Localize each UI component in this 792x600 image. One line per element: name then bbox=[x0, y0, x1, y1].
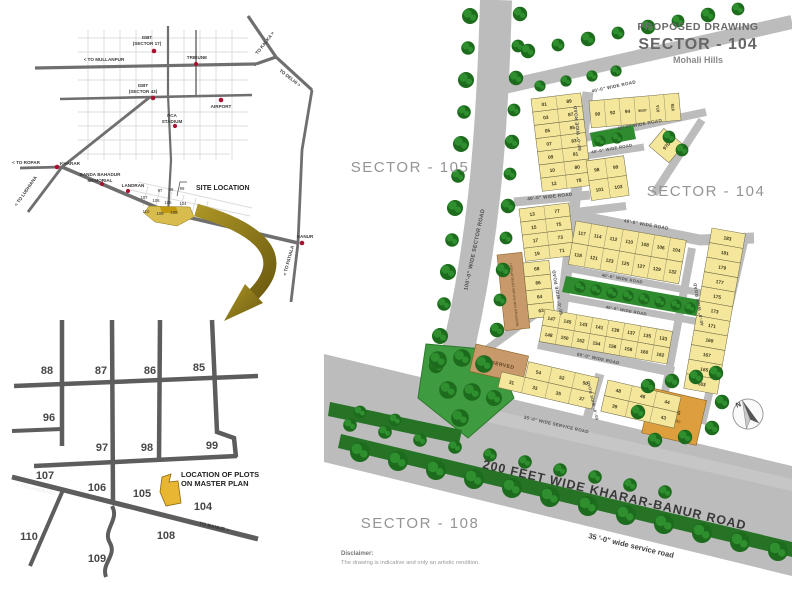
svg-text:85: 85 bbox=[193, 362, 205, 374]
svg-text:107: 107 bbox=[140, 195, 148, 200]
tree-icon bbox=[648, 433, 662, 447]
plot-number: 97B bbox=[670, 103, 676, 111]
sector-104-highlight: 104 bbox=[194, 501, 213, 513]
tree-icon bbox=[445, 233, 459, 247]
plot-number: 13 bbox=[529, 211, 535, 218]
svg-text:40'-0" WIDE ROAD: 40'-0" WIDE ROAD bbox=[591, 79, 637, 93]
plot-number: 63 bbox=[538, 308, 544, 315]
tree-icon bbox=[440, 264, 456, 280]
svg-text:109: 109 bbox=[88, 553, 106, 565]
title-proposed-drawing: PROPOSED DRAWING bbox=[637, 21, 758, 33]
plot-number: 71 bbox=[559, 248, 565, 255]
marker-banur bbox=[300, 241, 305, 246]
tree-icon bbox=[676, 144, 689, 157]
plot-number: 15 bbox=[531, 225, 537, 232]
label-site-location: SITE LOCATION bbox=[196, 185, 250, 192]
plot-number: 78 bbox=[576, 178, 582, 185]
label-landran: LANDRAN bbox=[122, 183, 145, 188]
plot-number: 77 bbox=[554, 208, 560, 215]
tree-icon bbox=[586, 70, 597, 81]
tree-icon bbox=[574, 281, 585, 292]
svg-text:110: 110 bbox=[143, 209, 150, 214]
location-note: LOCATION OF PLOTS bbox=[181, 470, 259, 479]
plot-number: 01 bbox=[541, 102, 547, 109]
label-to-patiala: < TO PATIALA bbox=[282, 244, 295, 276]
tree-icon bbox=[768, 541, 788, 561]
marker-landran bbox=[126, 189, 130, 193]
marker-isbt17 bbox=[152, 49, 157, 54]
title-sector: SECTOR - 104 bbox=[638, 36, 757, 53]
plot-number: 03 bbox=[543, 115, 549, 122]
label-tribune: TRIBUNE bbox=[187, 55, 207, 60]
tree-icon bbox=[413, 433, 427, 447]
tree-icon bbox=[611, 132, 622, 143]
plot-number: 66 bbox=[535, 280, 541, 287]
plot-number: 97A bbox=[655, 105, 661, 113]
tree-icon bbox=[508, 104, 521, 117]
plot-number: 89 bbox=[566, 98, 572, 105]
svg-text:104: 104 bbox=[179, 201, 187, 206]
svg-text:98: 98 bbox=[141, 442, 153, 454]
plot-block: 9899101103 bbox=[586, 156, 629, 201]
svg-text:86: 86 bbox=[144, 365, 156, 377]
tree-icon bbox=[638, 293, 649, 304]
tree-icon bbox=[594, 135, 605, 146]
disclaimer-label: Disclaimer: bbox=[341, 551, 373, 557]
plot-number: 90 bbox=[595, 111, 601, 117]
tree-icon bbox=[612, 27, 625, 40]
tree-icon bbox=[453, 349, 471, 367]
tree-icon bbox=[665, 374, 679, 388]
tree-icon bbox=[678, 430, 692, 444]
tree-icon bbox=[354, 406, 367, 419]
plot-number: 05 bbox=[545, 128, 551, 135]
plot-number: 75 bbox=[556, 222, 562, 229]
tree-icon bbox=[458, 72, 474, 88]
svg-text:105: 105 bbox=[133, 488, 151, 500]
tree-icon bbox=[560, 75, 571, 86]
tree-icon bbox=[590, 284, 601, 295]
tree-icon bbox=[464, 469, 484, 489]
svg-text:97: 97 bbox=[96, 442, 108, 454]
svg-text:97: 97 bbox=[158, 188, 163, 193]
tree-icon bbox=[453, 136, 469, 152]
tree-icon bbox=[616, 505, 636, 525]
tree-icon bbox=[521, 44, 535, 58]
svg-text:106: 106 bbox=[88, 482, 106, 494]
bottom-master-plan-map: 88 87 86 85 96 97 98 99 107 106 105 110 … bbox=[12, 320, 259, 577]
tree-icon bbox=[730, 532, 750, 552]
plot-highlight bbox=[160, 474, 181, 506]
svg-text:98: 98 bbox=[169, 187, 174, 192]
svg-text:107: 107 bbox=[36, 470, 54, 482]
tree-icon bbox=[715, 395, 729, 409]
tree-icon bbox=[709, 366, 723, 380]
tree-icon bbox=[610, 65, 621, 76]
tree-icon bbox=[343, 418, 357, 432]
label-to-ropar: < TO ROPAR bbox=[12, 160, 40, 165]
tree-icon bbox=[684, 302, 695, 313]
label-banur: BANUR bbox=[297, 234, 314, 239]
tree-icon bbox=[439, 381, 457, 399]
svg-text:STADIUM: STADIUM bbox=[162, 119, 183, 124]
tree-icon bbox=[654, 514, 674, 534]
label-isbt17: ISBT bbox=[142, 35, 153, 40]
tree-icon bbox=[432, 328, 448, 344]
tree-icon bbox=[705, 421, 719, 435]
label-pca: PCA bbox=[167, 113, 177, 118]
marker-isbt43 bbox=[151, 96, 156, 101]
plot-number: 92 bbox=[610, 110, 616, 116]
plot-number: 94 bbox=[625, 109, 631, 115]
disclaimer-text: The drawing is indicative and only an ar… bbox=[341, 560, 480, 566]
site-highlight bbox=[144, 206, 194, 226]
tree-icon bbox=[486, 390, 502, 406]
tree-icon bbox=[581, 32, 595, 46]
tree-icon bbox=[490, 323, 504, 337]
plot-number: 80 bbox=[574, 164, 580, 171]
label-isbt43: ISBT bbox=[138, 83, 149, 88]
tree-icon bbox=[378, 425, 392, 439]
marker-kharar bbox=[55, 165, 60, 170]
plot-number: 103 bbox=[614, 184, 623, 191]
plot-number: 10 bbox=[549, 168, 555, 175]
label-airport: AIRPORT bbox=[211, 104, 232, 109]
plot-number: 19 bbox=[534, 251, 540, 258]
svg-text:ON MASTER PLAN: ON MASTER PLAN bbox=[181, 479, 249, 488]
tree-icon bbox=[457, 105, 471, 119]
proposed-drawing-sheet: ISBT (SECTOR 17) < TO MULLANPUR TRIBUNE … bbox=[0, 0, 792, 600]
title-subtitle: Mohali Hills bbox=[673, 55, 723, 65]
tree-icon bbox=[654, 296, 665, 307]
tree-icon bbox=[689, 370, 703, 384]
svg-text:MEMORIAL: MEMORIAL bbox=[87, 178, 112, 183]
tree-icon bbox=[463, 383, 481, 401]
tree-icon bbox=[501, 199, 515, 213]
svg-text:99: 99 bbox=[206, 440, 218, 452]
svg-text:108: 108 bbox=[157, 530, 175, 542]
tree-icon bbox=[663, 131, 676, 144]
plot-number: 64 bbox=[537, 294, 543, 301]
plot-number: 81 bbox=[573, 151, 579, 158]
plot-number: 73 bbox=[557, 235, 563, 242]
svg-text:106: 106 bbox=[152, 198, 160, 203]
tree-icon bbox=[641, 379, 655, 393]
tree-icon bbox=[451, 409, 469, 427]
plot-number: 17 bbox=[533, 238, 539, 245]
master-plan-roads bbox=[12, 320, 258, 577]
tree-icon bbox=[504, 168, 517, 181]
plot-number: 96/97 bbox=[638, 108, 647, 113]
label-sector-108: SECTOR - 108 bbox=[361, 515, 480, 532]
tree-icon bbox=[437, 297, 451, 311]
tree-icon bbox=[475, 355, 493, 373]
site-plan: RESERVED FOR FUTURE DEVELOPMENT RESERVED… bbox=[324, 0, 792, 576]
label-kharar: KHARAR bbox=[60, 161, 81, 166]
tree-icon bbox=[513, 7, 527, 21]
disclaimer: Disclaimer: The drawing is indicative an… bbox=[341, 551, 480, 566]
tree-icon bbox=[578, 496, 598, 516]
tree-icon bbox=[494, 294, 507, 307]
tree-icon bbox=[658, 485, 672, 499]
svg-text:105: 105 bbox=[164, 200, 172, 205]
tree-icon bbox=[732, 3, 745, 16]
tree-icon bbox=[500, 232, 513, 245]
tree-icon bbox=[350, 442, 370, 462]
tree-icon bbox=[426, 460, 446, 480]
plot-number: 07 bbox=[546, 141, 552, 148]
svg-text:110: 110 bbox=[20, 531, 38, 543]
tree-icon bbox=[447, 200, 463, 216]
tree-icon bbox=[388, 451, 408, 471]
tree-icon bbox=[462, 8, 478, 24]
tree-icon bbox=[496, 263, 510, 277]
label-sector-104: SECTOR - 104 bbox=[647, 183, 766, 200]
tree-icon bbox=[540, 487, 560, 507]
svg-text:87: 87 bbox=[95, 365, 107, 377]
plot-blocks: 0189038705850783098110801278137715751773… bbox=[498, 93, 745, 428]
svg-text:96: 96 bbox=[43, 412, 55, 424]
tree-icon bbox=[505, 135, 519, 149]
tree-icon bbox=[389, 414, 402, 427]
svg-text:88: 88 bbox=[41, 365, 53, 377]
svg-text:108: 108 bbox=[170, 210, 178, 215]
label-to-mullanpur: < TO MULLANPUR bbox=[84, 57, 125, 62]
marker-airport bbox=[219, 98, 224, 103]
marker-tribune bbox=[194, 62, 198, 66]
north-compass-icon: N bbox=[728, 394, 767, 433]
svg-text:99: 99 bbox=[180, 186, 185, 191]
tree-icon bbox=[631, 405, 645, 419]
svg-text:(SECTOR 17): (SECTOR 17) bbox=[133, 41, 162, 46]
label-to-banur: TO BANUR > bbox=[199, 521, 230, 534]
tree-icon bbox=[670, 299, 681, 310]
plot-block: 1377157517731971 bbox=[519, 203, 575, 261]
svg-text:109: 109 bbox=[156, 211, 164, 216]
plot-number: 68 bbox=[534, 266, 540, 273]
tree-icon bbox=[552, 39, 565, 52]
label-memorial: BANDA BAHADUR bbox=[80, 172, 122, 177]
tree-icon bbox=[429, 351, 447, 369]
tree-icon bbox=[692, 523, 712, 543]
label-sector-105: SECTOR - 105 bbox=[351, 159, 470, 176]
tree-icon bbox=[448, 440, 462, 454]
svg-text:(SECTOR 43): (SECTOR 43) bbox=[129, 89, 158, 94]
tree-icon bbox=[502, 478, 522, 498]
plot-number: 12 bbox=[551, 181, 557, 188]
plot-number: 09 bbox=[548, 154, 554, 161]
marker-pca bbox=[173, 124, 177, 128]
tree-icon bbox=[606, 287, 617, 298]
tree-icon bbox=[461, 41, 475, 55]
tree-icon bbox=[534, 80, 545, 91]
tree-icon bbox=[509, 71, 523, 85]
plot-number: 101 bbox=[595, 187, 604, 194]
tree-icon bbox=[622, 290, 633, 301]
master-plan-arrow-icon bbox=[196, 210, 270, 321]
